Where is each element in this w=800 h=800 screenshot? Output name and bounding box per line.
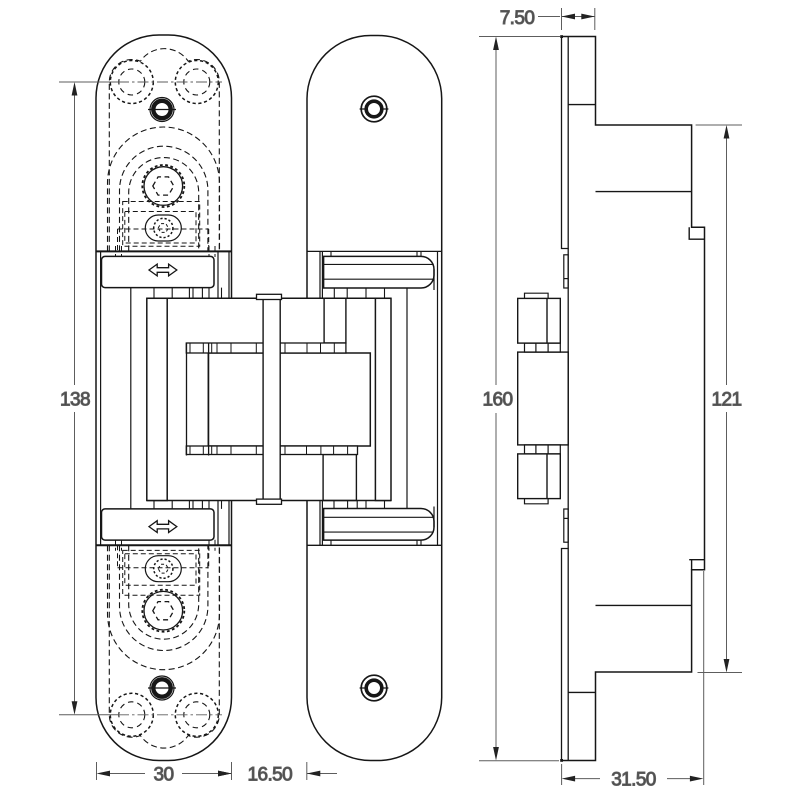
svg-text:160: 160 <box>483 390 513 411</box>
svg-text:31.50: 31.50 <box>611 770 656 791</box>
svg-text:7.50: 7.50 <box>500 8 535 29</box>
svg-text:138: 138 <box>60 390 90 411</box>
svg-text:121: 121 <box>712 390 742 411</box>
svg-text:30: 30 <box>154 765 174 786</box>
svg-text:16.50: 16.50 <box>248 765 293 786</box>
